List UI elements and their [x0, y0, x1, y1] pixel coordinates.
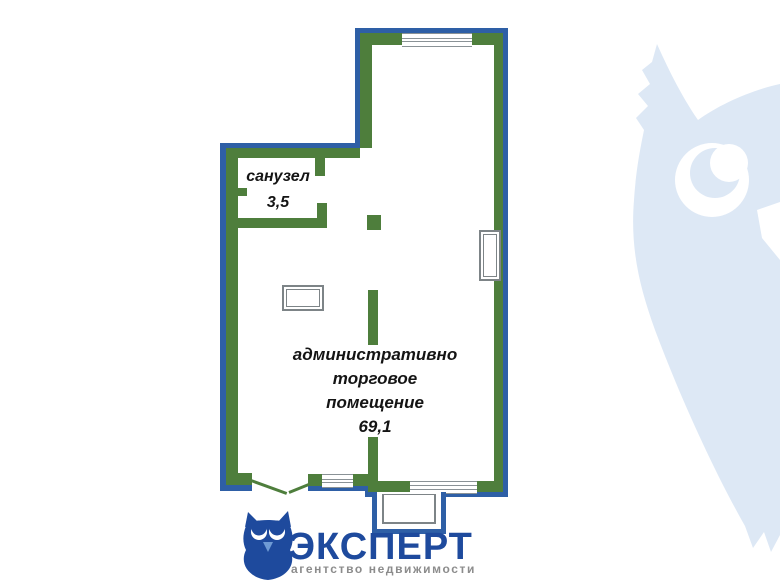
main-room-name-line: административно — [280, 343, 470, 367]
wc-wall-segment — [226, 218, 327, 228]
wc-room-area: 3,5 — [230, 190, 326, 216]
wall-segment — [477, 481, 503, 492]
wall-segment — [226, 485, 252, 491]
partition-stub — [368, 290, 378, 345]
main-room-name-line: торговое — [280, 367, 470, 391]
fixture-symbol — [282, 285, 324, 311]
fixture-inner-outline — [286, 289, 320, 307]
wc-room-name: санузел — [230, 164, 326, 190]
main-room-label: административно торговое помещение 69,1 — [280, 343, 470, 439]
door-swing-line — [250, 479, 287, 495]
main-room-name-line: помещение — [280, 391, 470, 415]
wall-segment — [226, 473, 252, 485]
wall-segment — [226, 148, 360, 158]
owl-watermark-icon — [600, 30, 780, 570]
wc-room-label: санузел 3,5 — [230, 164, 326, 216]
main-room-area: 69,1 — [280, 415, 470, 439]
radiator-symbol — [479, 230, 501, 281]
fixture-inner-outline — [483, 234, 497, 277]
agency-tagline: агентство недвижимости — [291, 562, 476, 576]
column-stub — [367, 215, 381, 230]
window-symbol — [322, 474, 353, 488]
agency-brand-name: ЭКСПЕРТ — [288, 528, 473, 566]
partition-stub — [368, 437, 378, 492]
window-symbol — [402, 33, 472, 47]
porch-inner-outline — [382, 494, 436, 524]
wall-segment — [503, 28, 508, 497]
floorplan-page: санузел 3,5 административно торговое пом… — [0, 0, 780, 580]
wall-segment — [360, 33, 372, 148]
wall-segment — [353, 474, 368, 486]
